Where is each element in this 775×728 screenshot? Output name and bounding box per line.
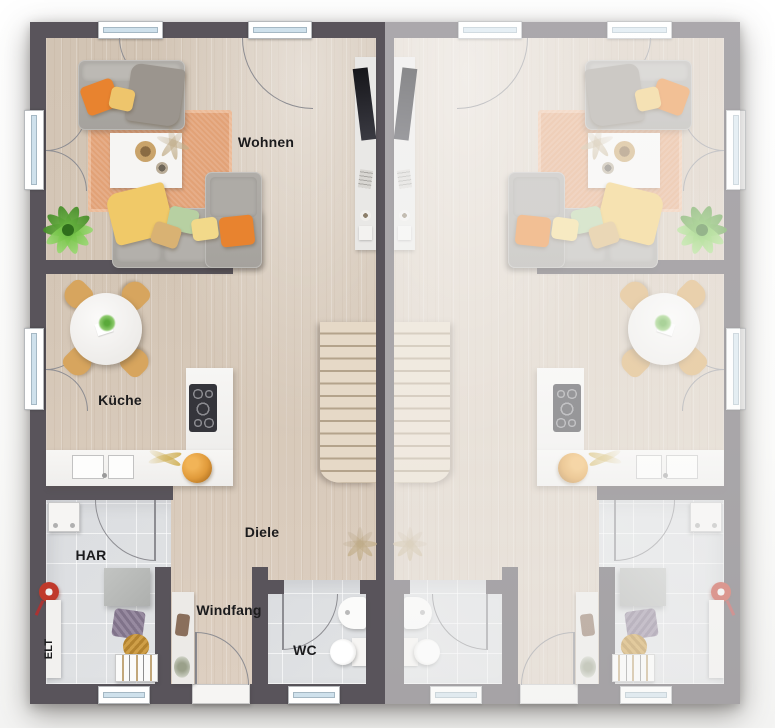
- toilet-bowl: [330, 639, 356, 665]
- dried-plant: [390, 524, 430, 564]
- wall-wc-top-left-stub: [268, 580, 284, 594]
- wall-wc-right: [394, 580, 404, 684]
- unit-right-mirrored-content: [385, 22, 740, 704]
- kitchen-sink: [636, 455, 698, 479]
- fruit-bowl: [558, 453, 588, 483]
- palm-plant: [42, 204, 94, 256]
- hob: [189, 384, 217, 432]
- room-label-windfang: Windfang: [196, 602, 261, 618]
- room-label-elt: ELT: [43, 639, 55, 660]
- faucet: [663, 473, 668, 478]
- wall-top: [30, 22, 385, 38]
- books: [397, 169, 412, 189]
- entry-plant: [580, 656, 596, 678]
- cup: [399, 210, 410, 221]
- wall-wc-top-left-stub: [486, 580, 502, 594]
- window-top-2: [248, 21, 312, 39]
- bag: [580, 613, 596, 636]
- window-left-1: [24, 110, 44, 190]
- window-wc: [288, 686, 340, 704]
- window-har: [620, 686, 672, 704]
- wc-door-leaf: [282, 594, 284, 649]
- unit-left: Wohnen Küche Diele Windfang WC HAR ELT: [30, 22, 385, 704]
- bag: [175, 613, 191, 636]
- decor-bowl: [135, 141, 156, 162]
- hob: [553, 384, 581, 432]
- window-top-2: [458, 21, 522, 39]
- wc-door-leaf: [486, 594, 488, 649]
- window-top-1: [607, 21, 672, 39]
- pillow-pale-yellow: [191, 216, 220, 241]
- washing-machine: [690, 502, 722, 532]
- wall-windfang-wc: [502, 567, 518, 684]
- toilet-bowl: [414, 639, 440, 665]
- table-plant: [158, 128, 188, 158]
- kitchen-twig: [148, 446, 182, 470]
- palm-plant: [676, 204, 728, 256]
- dried-plant: [340, 524, 380, 564]
- sideboard-box: [359, 226, 372, 240]
- fruit-bowl: [182, 453, 212, 483]
- drying-rack: [115, 654, 158, 682]
- room-label-har: HAR: [76, 547, 107, 563]
- party-wall: [385, 22, 394, 704]
- wall-kueche-har: [597, 486, 740, 500]
- table-deco-plant: [98, 314, 116, 332]
- sideboard-box: [398, 226, 411, 240]
- staircase: [320, 322, 376, 483]
- pillow-orange-2: [219, 214, 256, 247]
- elt-cabinet: [709, 600, 724, 678]
- faucet: [102, 473, 107, 478]
- entrance-door-leaf: [573, 632, 575, 684]
- room-label-kueche: Küche: [98, 392, 142, 408]
- table-deco-plant: [654, 314, 672, 332]
- entrance-door: [192, 684, 250, 704]
- wall-windfang-wc: [252, 567, 268, 684]
- wc-sink: [338, 597, 366, 629]
- window-left-2: [726, 328, 746, 410]
- washing-machine: [48, 502, 80, 532]
- window-top-1: [98, 21, 163, 39]
- staircase: [394, 322, 450, 483]
- har-door-leaf: [614, 500, 616, 560]
- drying-rack: [612, 654, 655, 682]
- heat-pump: [104, 568, 150, 606]
- har-door-leaf: [154, 500, 156, 560]
- books: [358, 169, 373, 189]
- table-plant: [582, 128, 612, 158]
- vacuum-cleaner: [39, 582, 59, 602]
- floorplan-canvas: Wohnen Küche Diele Windfang WC HAR ELT: [0, 0, 775, 728]
- pillow-yellow: [108, 86, 136, 113]
- entrance-door: [520, 684, 578, 704]
- heat-pump: [620, 568, 666, 606]
- pillow-pale-yellow: [551, 216, 580, 241]
- cup: [360, 210, 371, 221]
- window-left-2: [24, 328, 44, 410]
- party-wall: [376, 22, 385, 704]
- kitchen-sink: [72, 455, 134, 479]
- decor-vase: [602, 162, 614, 174]
- unit-right: [385, 22, 740, 704]
- window-wc: [430, 686, 482, 704]
- room-label-wc: WC: [293, 642, 317, 658]
- entry-plant: [174, 656, 190, 678]
- window-left-1: [726, 110, 746, 190]
- room-label-wohnen: Wohnen: [238, 134, 294, 150]
- entrance-door-leaf: [195, 632, 197, 684]
- wall-wc-right: [366, 580, 376, 684]
- decor-vase: [156, 162, 168, 174]
- decor-bowl: [614, 141, 635, 162]
- room-label-diele: Diele: [245, 524, 279, 540]
- wall-kueche-har: [30, 486, 173, 500]
- kitchen-twig: [588, 446, 622, 470]
- wall-top: [385, 22, 740, 38]
- window-har: [98, 686, 150, 704]
- pillow-orange-2: [515, 214, 552, 247]
